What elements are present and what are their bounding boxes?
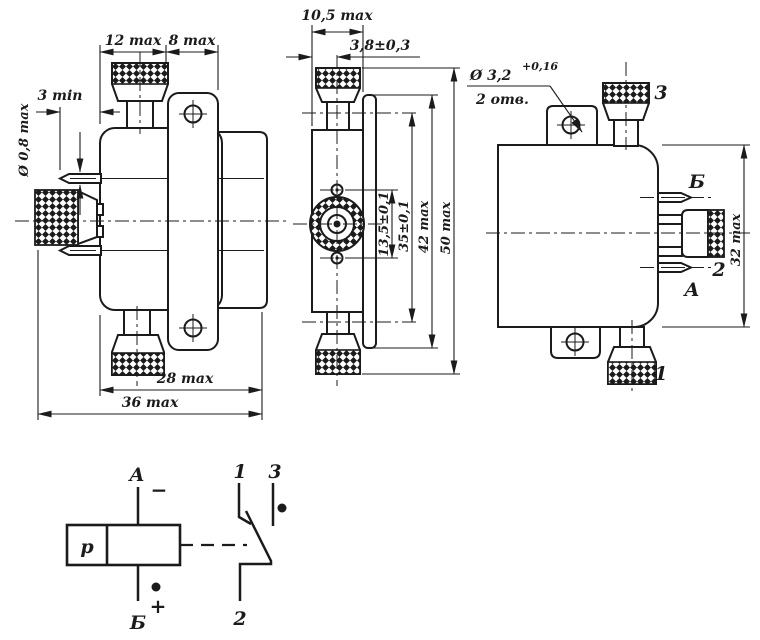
contact-1-label: 1 [654, 363, 667, 385]
mounting-flange-side [363, 95, 376, 348]
dim-label: 8 max [169, 33, 217, 49]
dim-8max: 8 max [166, 33, 218, 90]
hole-quantity-label: 2 отв. [475, 92, 529, 108]
contact-3: 3 [268, 461, 286, 526]
knob-neck [327, 312, 349, 334]
dim-label: 50 max [439, 201, 454, 254]
knob-1: 1 [608, 320, 668, 392]
contact-2-label: 2 [232, 608, 246, 630]
knob-3: 3 [603, 62, 668, 150]
coil-letter: р [80, 536, 94, 558]
minus-sign: − [151, 478, 168, 502]
dim-label: 28 max [156, 371, 214, 387]
dim-label: 32 max [729, 213, 744, 266]
dim-label: 10,5 max [301, 8, 373, 24]
dim-label: 3 min [38, 88, 83, 104]
contact-2-armature: 2 [232, 511, 271, 630]
terminal-a-label: А [127, 464, 144, 486]
knob-bottom-side [316, 312, 360, 374]
contact-3-label: 3 [268, 461, 281, 483]
knurl-cap [316, 350, 360, 374]
dim-label: Ø 0,8 max [17, 103, 32, 177]
ear [547, 106, 597, 148]
mounting-ear-top [547, 106, 597, 148]
pin-b-label: Б [688, 171, 705, 193]
knurl-cap [35, 190, 78, 245]
dim-label: 42 max [417, 200, 432, 253]
relay-body-back [498, 145, 658, 327]
contact-3-label: 3 [654, 82, 667, 104]
knob-top-front [112, 52, 168, 134]
hole-diameter-label: Ø 3,2 [469, 68, 512, 84]
knob-stem [658, 247, 682, 256]
back-view: 3 1 Б 2 А [467, 60, 754, 392]
contact-1-label: 1 [233, 461, 246, 483]
terminal-b-label: Б [129, 612, 146, 634]
mounting-ear-bottom [551, 324, 600, 358]
dim-label: 35±0,1 [397, 200, 412, 252]
schematic: р А − + Б 1 3 2 [67, 461, 287, 634]
dim-label: 3,8±0,3 [350, 38, 411, 54]
pin-lower-2: 2 А [658, 259, 726, 301]
rear-block [218, 132, 267, 308]
dim-35: 35±0,1 [397, 113, 412, 322]
plus-sign: + [150, 594, 167, 618]
side-view: 10,5 max 3,8±0,3 13,5±0,1 35±0,1 42 max [286, 8, 460, 386]
relay-technical-drawing: 12 max 8 max 3 min Ø 0,8 max 28 max [0, 0, 760, 640]
drawing-sheet: 12 max 8 max 3 min Ø 0,8 max 28 max [0, 0, 760, 640]
dim-label: 36 max [122, 395, 179, 411]
pin-a-label: А [682, 279, 699, 301]
armature-line [240, 511, 271, 601]
dim-label: 12 max [105, 33, 162, 49]
knurl-cap [316, 68, 360, 88]
knob-top-side [316, 68, 360, 130]
hole-tolerance-label: +0,16 [522, 60, 558, 73]
contact-3-dot [278, 504, 287, 513]
knob-cone [78, 191, 97, 244]
side-knob-front [35, 190, 103, 245]
front-view: 12 max 8 max 3 min Ø 0,8 max 28 max [15, 33, 290, 420]
knob-stem [658, 215, 682, 224]
dim-38: 3,8±0,3 [286, 38, 420, 57]
polarity-dot [152, 583, 161, 592]
pin-2-label: 2 [711, 259, 725, 281]
dim-label: 13,5±0,1 [377, 191, 392, 256]
knob-neck [327, 102, 349, 130]
